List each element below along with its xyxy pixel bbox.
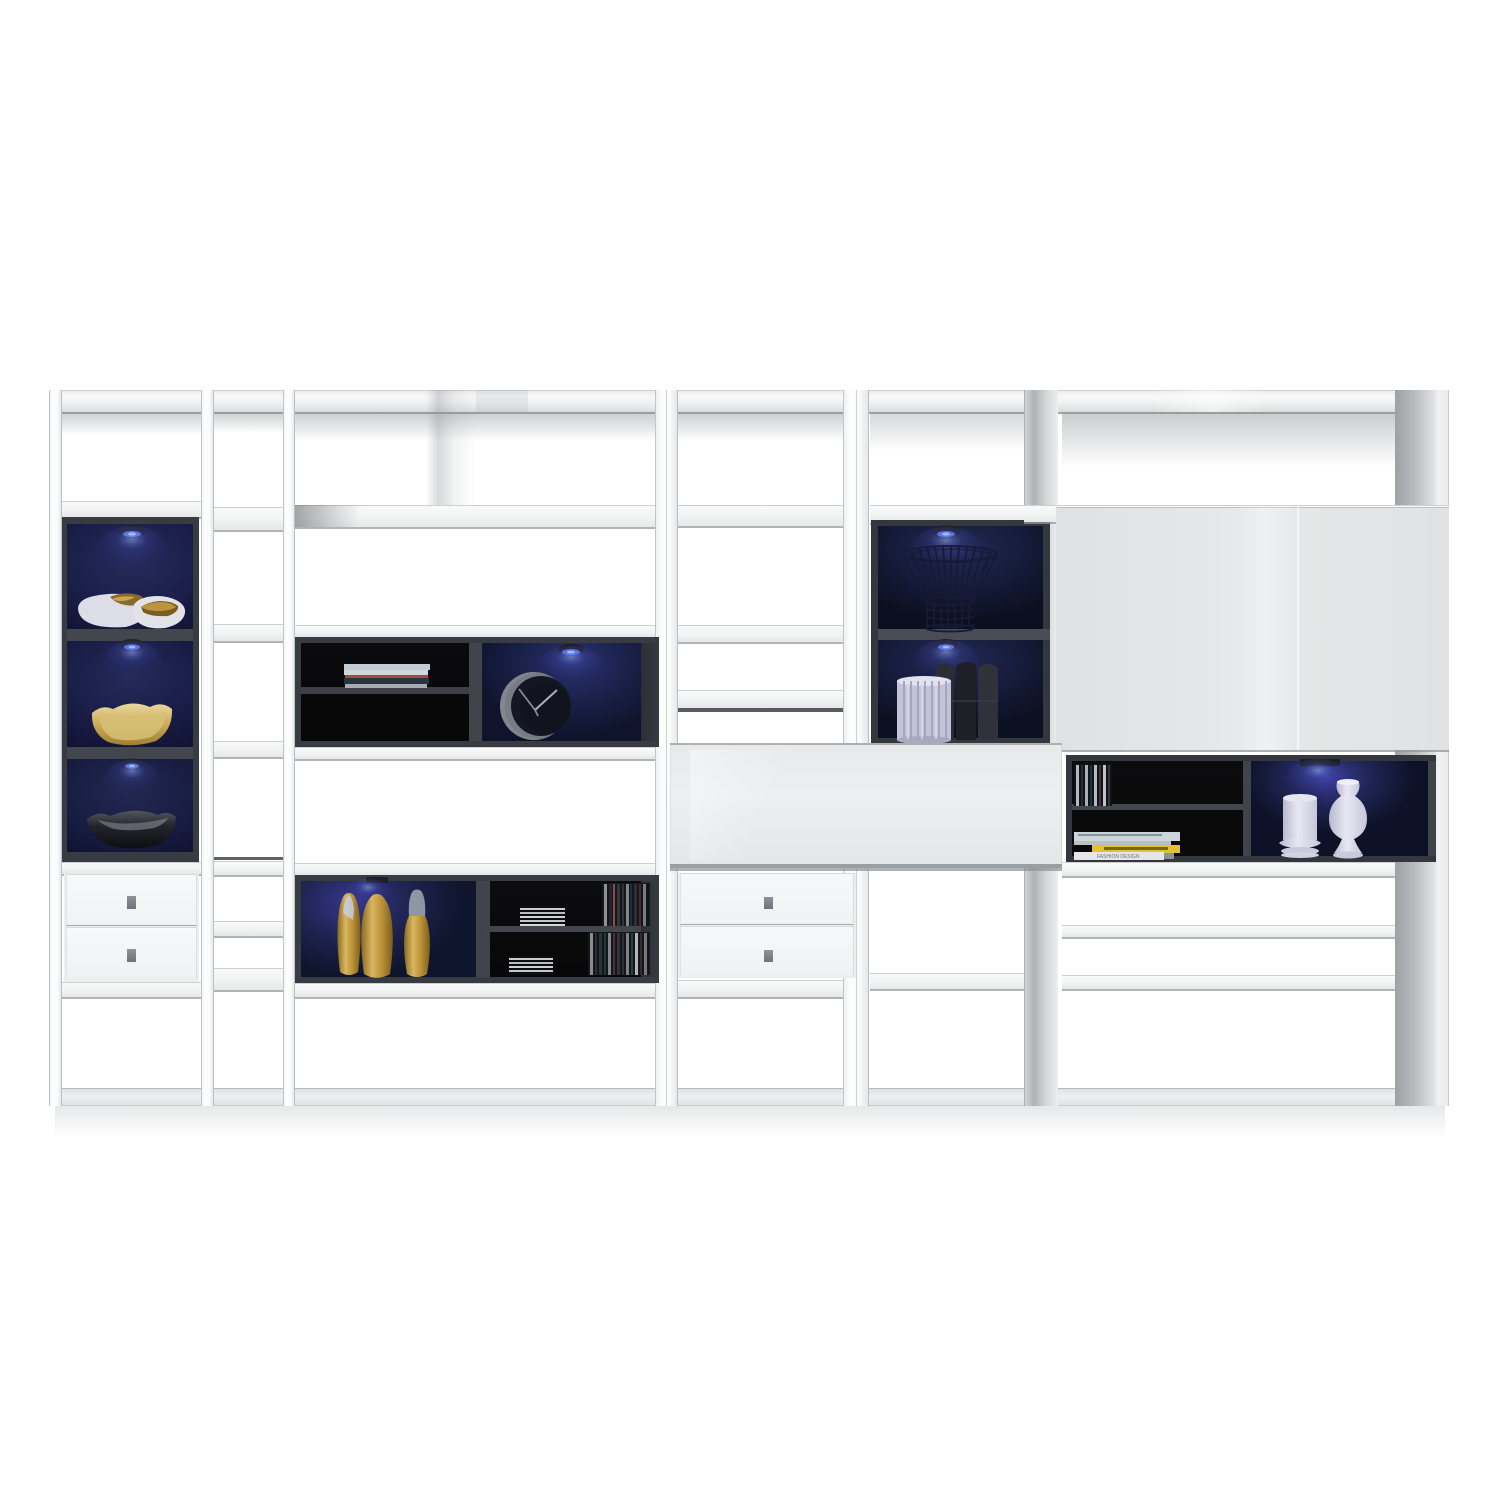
svg-text:FASHION DESIGN: FASHION DESIGN — [1097, 854, 1140, 860]
